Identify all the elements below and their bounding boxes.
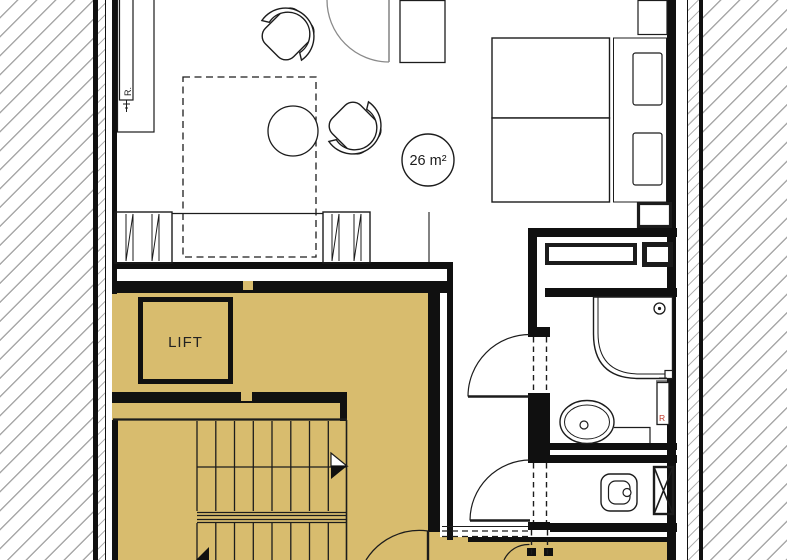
interior-right-wall xyxy=(667,0,676,560)
closet-band xyxy=(115,212,429,263)
vestibule-bottom-opening xyxy=(442,527,528,537)
shower-room-door xyxy=(468,335,530,397)
shower-room-bottom-wall xyxy=(548,443,677,450)
hall-top-wall-notch xyxy=(243,281,253,290)
pillow-2 xyxy=(633,133,662,185)
flush-button-icon xyxy=(623,489,631,497)
shower-tray xyxy=(594,297,673,379)
wall-below-lift-end-cap xyxy=(340,403,347,421)
lift-label: LIFT xyxy=(143,334,228,354)
sink xyxy=(560,401,650,444)
nightstand-bottom xyxy=(639,204,671,227)
bottom-corridor-top-border xyxy=(468,537,667,542)
wc-door-jamb-bottom xyxy=(528,522,550,530)
shower-room-top-wall xyxy=(545,288,677,297)
armchair-1 xyxy=(252,0,326,70)
exterior-wall-hatch-left xyxy=(0,0,93,560)
door-swing-arc xyxy=(470,460,530,521)
exterior-wall-hatch-strip-right xyxy=(688,0,699,560)
hall-door-passage-zone xyxy=(428,532,440,560)
wall-below-lift-notch xyxy=(241,392,252,401)
exterior-wall-thin-line-left xyxy=(105,0,107,560)
shower-door-jamb-top xyxy=(528,327,550,337)
armchair-2 xyxy=(319,92,393,166)
wc-bottom-wall xyxy=(550,523,677,532)
toilet xyxy=(601,474,637,511)
bottom-opening-jamb-right xyxy=(544,548,553,556)
door-swing-arc xyxy=(327,0,389,62)
area-badge xyxy=(402,134,454,186)
vestibule-left-wall xyxy=(447,262,453,540)
bedroom-door-top xyxy=(327,0,389,62)
radiator-living xyxy=(118,0,155,132)
radiator-living-label: R. xyxy=(123,87,133,96)
area-label: 26 m² xyxy=(409,153,446,169)
shower-door-jamb-bottom xyxy=(528,393,550,403)
exterior-wall-hatch-right xyxy=(703,0,787,560)
wardrobe-right xyxy=(323,212,370,263)
round-table xyxy=(268,106,318,156)
sink-ledge xyxy=(614,428,650,444)
shower-head-icon xyxy=(654,303,665,314)
wc-door xyxy=(470,460,530,521)
bathroom-left-wall-upper xyxy=(528,237,537,335)
bath-shelf xyxy=(547,245,635,263)
closet-back-wall xyxy=(113,262,453,269)
wall-between-doors xyxy=(528,403,550,455)
wall-below-lift xyxy=(112,392,347,403)
twin-beds xyxy=(492,38,667,202)
bedroom-left-wall xyxy=(112,0,117,294)
nightstand-top xyxy=(638,1,667,35)
hall-top-wall xyxy=(112,281,447,293)
stairwell-left-wall xyxy=(112,420,118,560)
hall-right-wall xyxy=(428,281,440,532)
bottom-opening-jamb-left xyxy=(527,548,536,556)
bathroom-top-wall xyxy=(528,228,677,237)
bed-1 xyxy=(492,38,610,118)
desk xyxy=(400,1,445,63)
wardrobe-left xyxy=(115,212,172,263)
floor-plan: R. 26 m² R LIFT xyxy=(0,0,787,560)
radiator-bath-label: R xyxy=(659,413,665,423)
wc-top-wall xyxy=(528,455,677,463)
radiator-valve-icon xyxy=(121,100,132,112)
dashed-floor-zone xyxy=(183,77,316,257)
pillow-1 xyxy=(633,53,662,105)
bed-2 xyxy=(492,118,610,202)
sink-drain-icon xyxy=(580,421,588,429)
door-swing-arc xyxy=(468,335,530,397)
